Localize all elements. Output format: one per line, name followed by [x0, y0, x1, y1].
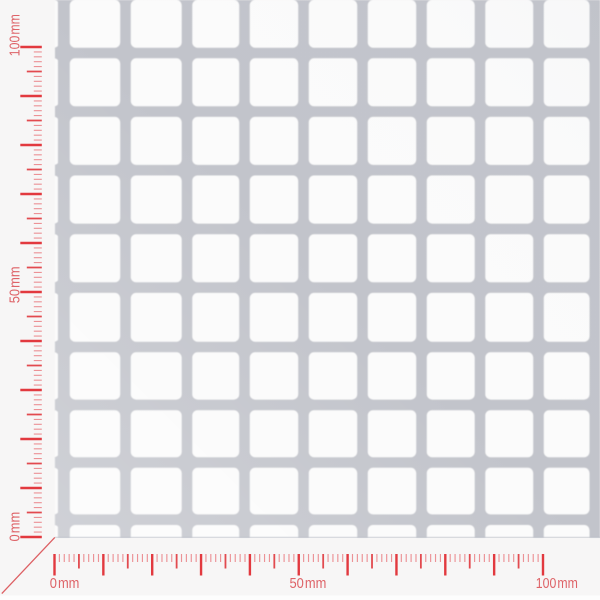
svg-text:100 mm: 100 mm	[536, 575, 578, 591]
svg-text:100 mm: 100 mm	[6, 14, 22, 56]
svg-text:0 mm: 0 mm	[6, 512, 23, 542]
svg-text:50 mm: 50 mm	[290, 574, 327, 591]
svg-text:0 mm: 0 mm	[50, 574, 80, 591]
svg-text:50 mm: 50 mm	[5, 266, 22, 303]
